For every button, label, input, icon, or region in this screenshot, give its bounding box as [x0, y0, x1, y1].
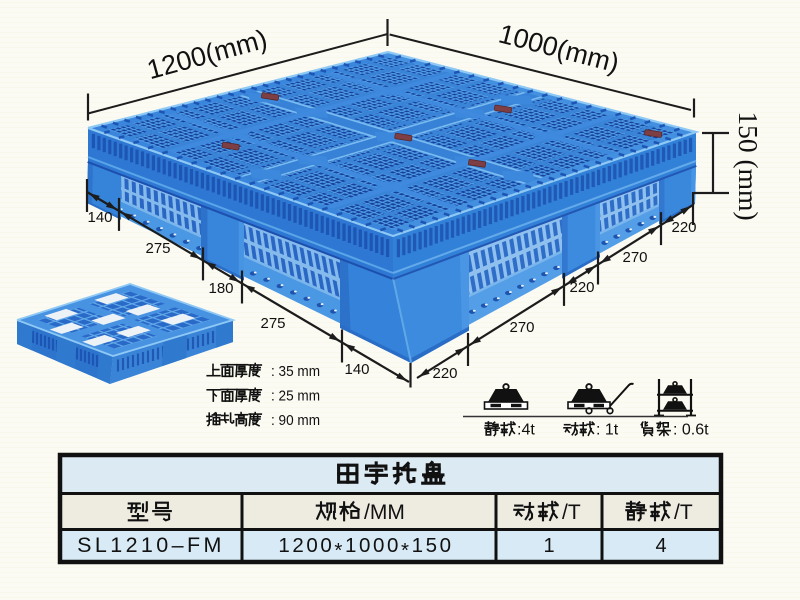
svg-text:: 0.6t: : 0.6t [673, 422, 709, 439]
svg-text:/T: /T [674, 501, 693, 524]
svg-text:140: 140 [344, 361, 369, 378]
svg-text:140: 140 [87, 209, 112, 226]
svg-text:275: 275 [260, 315, 285, 332]
svg-text:150 (mm): 150 (mm) [733, 111, 764, 220]
svg-text:: 35 mm: : 35 mm [271, 363, 320, 380]
svg-text:SL1210–FM: SL1210–FM [77, 533, 225, 557]
svg-text:4: 4 [655, 535, 666, 557]
svg-text:275: 275 [145, 240, 170, 257]
svg-text:/MM: /MM [364, 501, 405, 524]
svg-text:220: 220 [671, 219, 696, 236]
svg-text:270: 270 [509, 319, 534, 336]
svg-text:220: 220 [432, 365, 457, 382]
svg-text:1: 1 [543, 535, 554, 557]
svg-text:: 1t: : 1t [596, 422, 619, 439]
svg-text:180: 180 [208, 280, 233, 297]
svg-text:/T: /T [562, 501, 581, 524]
svg-text:270: 270 [622, 249, 647, 266]
svg-text::4t: :4t [517, 422, 535, 439]
svg-text:: 25 mm: : 25 mm [271, 388, 320, 405]
svg-text:: 90 mm: : 90 mm [271, 412, 320, 429]
svg-text:220: 220 [569, 279, 594, 296]
